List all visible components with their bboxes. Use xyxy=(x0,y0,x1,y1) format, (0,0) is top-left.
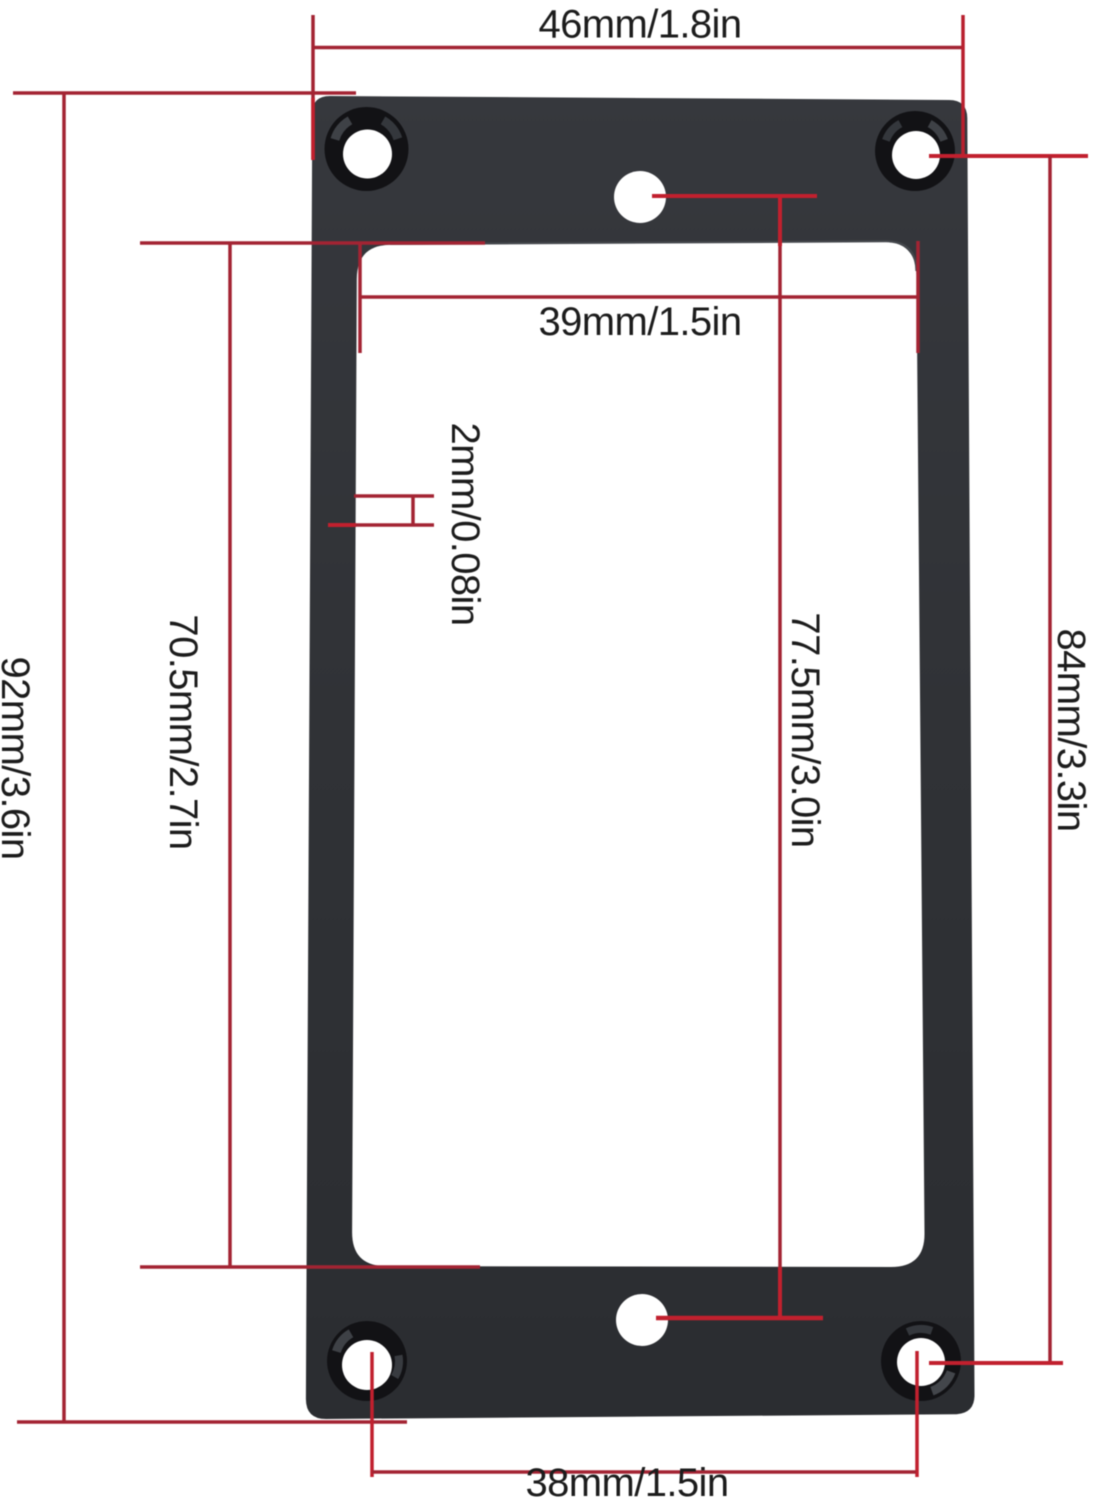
svg-text:84mm/3.3in: 84mm/3.3in xyxy=(1049,629,1093,832)
svg-text:39mm/1.5in: 39mm/1.5in xyxy=(539,300,742,344)
svg-text:70.5mm/2.7in: 70.5mm/2.7in xyxy=(161,614,205,849)
svg-text:38mm/1.5in: 38mm/1.5in xyxy=(526,1461,729,1500)
svg-text:46mm/1.8in: 46mm/1.8in xyxy=(539,3,742,47)
svg-text:2mm/0.08in: 2mm/0.08in xyxy=(443,423,487,626)
svg-text:77.5mm/3.0in: 77.5mm/3.0in xyxy=(783,612,827,847)
svg-text:92mm/3.6in: 92mm/3.6in xyxy=(0,657,37,860)
